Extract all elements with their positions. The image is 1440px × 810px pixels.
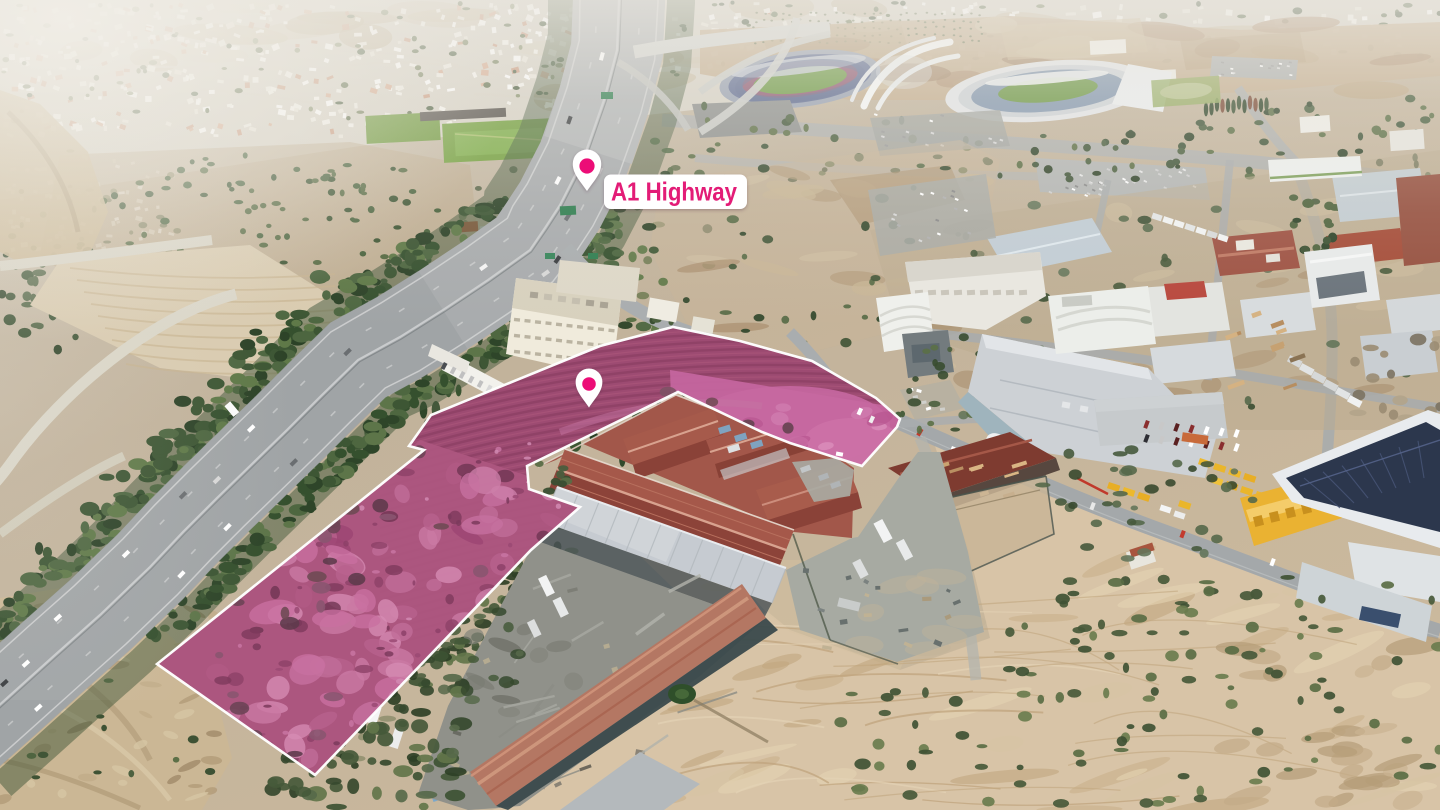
svg-text:A1 Highway: A1 Highway <box>611 177 737 207</box>
